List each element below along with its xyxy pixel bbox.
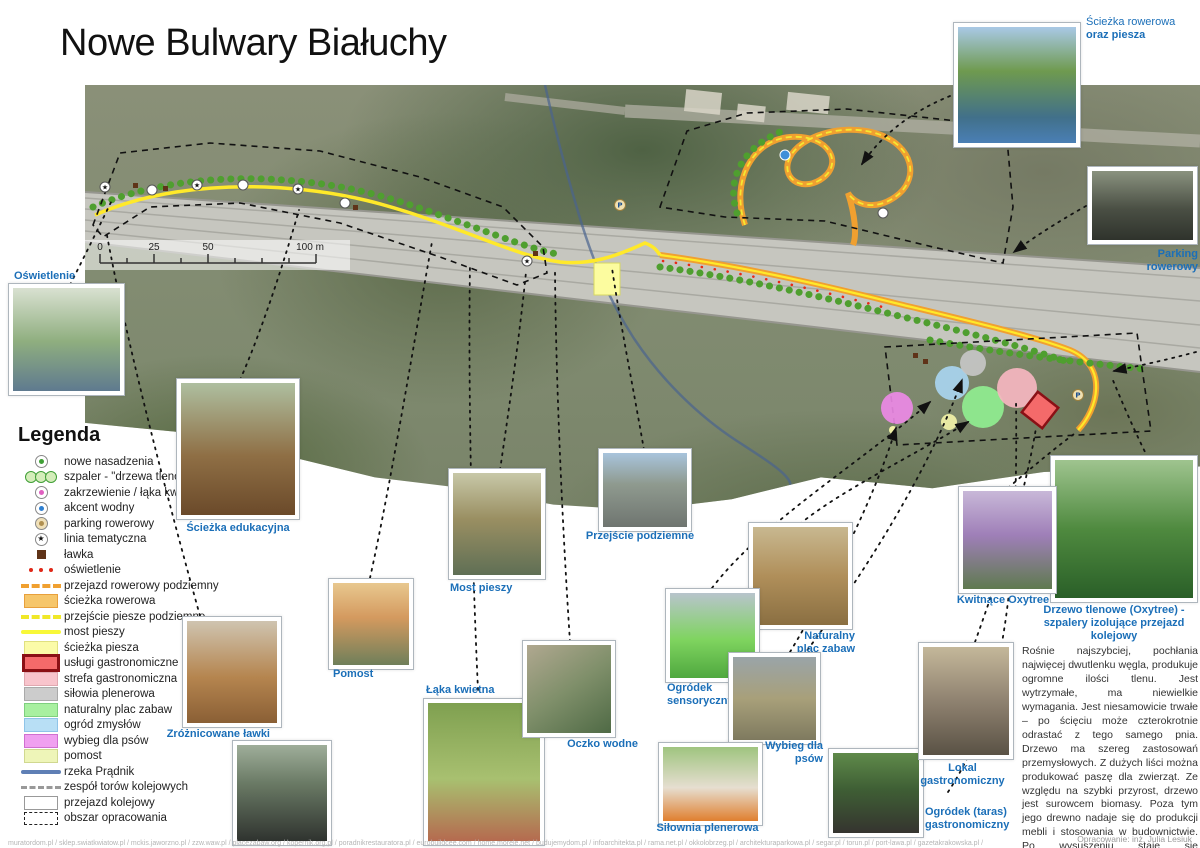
legend-item: obszar opracowania — [18, 811, 203, 827]
legend-label: ławka — [64, 549, 93, 561]
legend-item: przejazd kolejowy — [18, 795, 203, 811]
photo-pomost — [328, 578, 414, 670]
legend-label: parking rowerowy — [64, 518, 154, 530]
photo-kwitnace — [958, 486, 1057, 594]
legend-label: linia tematyczna — [64, 533, 146, 545]
legend-label: ścieżka piesza — [64, 642, 139, 654]
kwitnace-image — [963, 491, 1052, 589]
pomost-image — [333, 583, 409, 665]
pomost-caption: Pomost — [333, 668, 373, 681]
legend-label: przejazd kolejowy — [64, 797, 155, 809]
photo-wybieg — [728, 652, 821, 745]
legend-label: zespół torów kolejowych — [64, 781, 188, 793]
scale-bar: 0 25 50 100 m — [85, 240, 350, 270]
kwitnace-caption: Kwitnące Oxytree — [948, 594, 1058, 607]
svg-text:P: P — [617, 202, 622, 210]
legend-swatch-circle-glyph — [18, 502, 64, 515]
cyclists-image — [958, 27, 1076, 143]
legend-item: most pieszy — [18, 625, 203, 641]
legend-item: ławka — [18, 547, 203, 563]
legend-swatch-rect — [18, 718, 64, 732]
legend-item: ścieżka piesza — [18, 640, 203, 656]
cyclists-caption: Ścieżka rowerowa oraz piesza — [1086, 16, 1196, 42]
lokal-caption: Lokal gastronomiczny — [905, 762, 1020, 788]
edukacyjna-caption: Ścieżka edukacyjna — [176, 522, 300, 535]
przejscie-image — [603, 453, 687, 527]
legend-label: ścieżka rowerowa — [64, 595, 155, 607]
oswietlenie-caption: Oświetlenie — [14, 270, 75, 283]
legend-swatch-dash-gray — [18, 786, 64, 789]
photo-lokal — [918, 642, 1014, 760]
legend-label: przejazd rowerowy podziemny — [64, 580, 219, 592]
photo-lawki-2 — [232, 740, 332, 846]
legend-label: obszar opracowania — [64, 812, 167, 824]
legend-swatch-solid-line — [18, 630, 64, 634]
wybieg-caption: Wybieg dla psów — [763, 740, 823, 766]
svg-text:P: P — [1075, 392, 1080, 400]
photo-parking — [1087, 166, 1198, 245]
legend-label: strefa gastronomiczna — [64, 673, 177, 685]
legend-swatch-rect — [18, 654, 64, 672]
legend-swatch-circle-glyph — [18, 517, 64, 530]
svg-text:★: ★ — [295, 186, 301, 194]
photo-drzewo — [1050, 455, 1198, 603]
legend-swatch-dash-line — [18, 584, 64, 588]
wybieg-image — [733, 657, 816, 740]
legend-label: nowe nasadzenia — [64, 456, 154, 468]
legend-item: pomost — [18, 749, 203, 765]
legend-swatch-square — [18, 550, 64, 559]
legend-label: wybieg dla psów — [64, 735, 148, 747]
scale-label-100: 100 m — [296, 242, 324, 253]
legend-swatch-circle-star: ★ — [18, 533, 64, 546]
laka-caption: Łąka kwietna — [426, 684, 494, 697]
photo-oczko — [522, 640, 616, 738]
oswietlenie-image — [13, 288, 120, 391]
railway-band — [85, 192, 1200, 372]
legend-swatch-rect — [18, 687, 64, 701]
legend-label: pomost — [64, 750, 102, 762]
svg-text:★: ★ — [194, 182, 200, 190]
legend-label: most pieszy — [64, 626, 125, 638]
parking-image — [1092, 171, 1193, 240]
legend-label: akcent wodny — [64, 502, 134, 514]
legend-swatch-rect — [18, 641, 64, 655]
oczko-caption: Oczko wodne — [558, 738, 638, 751]
legend-swatch-bracket — [18, 812, 64, 825]
edukacyjna-image — [181, 383, 295, 515]
photo-plac — [748, 522, 853, 630]
legend-item: rzeka Prądnik — [18, 764, 203, 780]
photo-most — [448, 468, 546, 580]
legend-label: naturalny plac zabaw — [64, 704, 172, 716]
legend-item: strefa gastronomiczna — [18, 671, 203, 687]
attribution: Opracowanie: inż. Julia Lesiuk — [1077, 834, 1192, 844]
lokal-image — [923, 647, 1009, 755]
legend-swatch-circle-glyph — [18, 455, 64, 468]
program-zones — [881, 350, 1058, 434]
svg-text:★: ★ — [102, 184, 108, 192]
water-accent — [780, 150, 790, 160]
parking-caption: Parking rowerowy — [1128, 248, 1198, 274]
poster-page: Nowe Bulwary Białuchy — [0, 0, 1200, 848]
photo-oswietlenie — [8, 283, 125, 396]
photo-cyclists — [953, 22, 1081, 148]
legend-swatch-rect — [18, 796, 64, 810]
drzewo-image — [1055, 460, 1193, 598]
legend-swatch-rect — [18, 594, 64, 608]
photo-edukacyjna — [176, 378, 300, 520]
legend-swatch-rect — [18, 734, 64, 748]
underpass-area — [594, 263, 620, 295]
legend-swatch-dots3 — [18, 568, 64, 572]
legend-swatch-solid-line — [18, 770, 64, 774]
silownia-image — [663, 747, 758, 821]
legend-label: oświetlenie — [64, 564, 121, 576]
legend-label: usługi gastronomiczne — [64, 657, 178, 669]
legend-item: przejazd rowerowy podziemny — [18, 578, 203, 594]
legend-swatch-rect — [18, 749, 64, 763]
plac-image — [753, 527, 848, 625]
drzewo-caption: Drzewo tlenowe (Oxytree) - szpalery izol… — [1030, 604, 1198, 643]
legend-item: oświetlenie — [18, 563, 203, 579]
legend-swatch-rect — [18, 703, 64, 717]
legend-item: usługi gastronomiczne — [18, 656, 203, 672]
legend-item: naturalny plac zabaw — [18, 702, 203, 718]
most-image — [453, 473, 541, 575]
oxytree-description: Rośnie najszybciej, pochłania najwięcej … — [1022, 645, 1198, 848]
svg-text:★: ★ — [524, 258, 530, 266]
scale-label-0: 0 — [97, 242, 103, 253]
oczko-image — [527, 645, 611, 733]
legend-item: zespół torów kolejowych — [18, 780, 203, 796]
lawki-image-1 — [187, 621, 277, 723]
legend-label: rzeka Prądnik — [64, 766, 134, 778]
legend-swatch-rect — [18, 672, 64, 686]
photo-przejscie — [598, 448, 692, 532]
photo-silownia — [658, 742, 763, 826]
footer-sources: muratordom.pl / sklep.swiatkwiatow.pl / … — [8, 840, 983, 847]
przejscie-caption: Przejście podziemne — [580, 530, 700, 543]
legend-label: siłowia plenerowa — [64, 688, 155, 700]
taras-caption: Ogródek (taras) gastronomiczny — [925, 806, 1015, 832]
legend-swatch-dash-line — [18, 615, 64, 619]
silownia-caption: Siłownia plenerowa — [650, 822, 765, 835]
legend-swatch-circles3 — [18, 471, 64, 483]
lawki-image-2 — [237, 745, 327, 841]
scale-label-25: 25 — [148, 242, 159, 253]
legend-swatch-circle-glyph — [18, 486, 64, 499]
legend-item: przejście piesze podziemne — [18, 609, 203, 625]
page-title: Nowe Bulwary Białuchy — [60, 22, 447, 65]
legend-item: siłowia plenerowa — [18, 687, 203, 703]
photo-lawki-1 — [182, 616, 282, 728]
legend-label: ogród zmysłów — [64, 719, 141, 731]
legend-item: ścieżka rowerowa — [18, 594, 203, 610]
most-caption: Most pieszy — [450, 582, 512, 595]
scale-label-50: 50 — [202, 242, 213, 253]
